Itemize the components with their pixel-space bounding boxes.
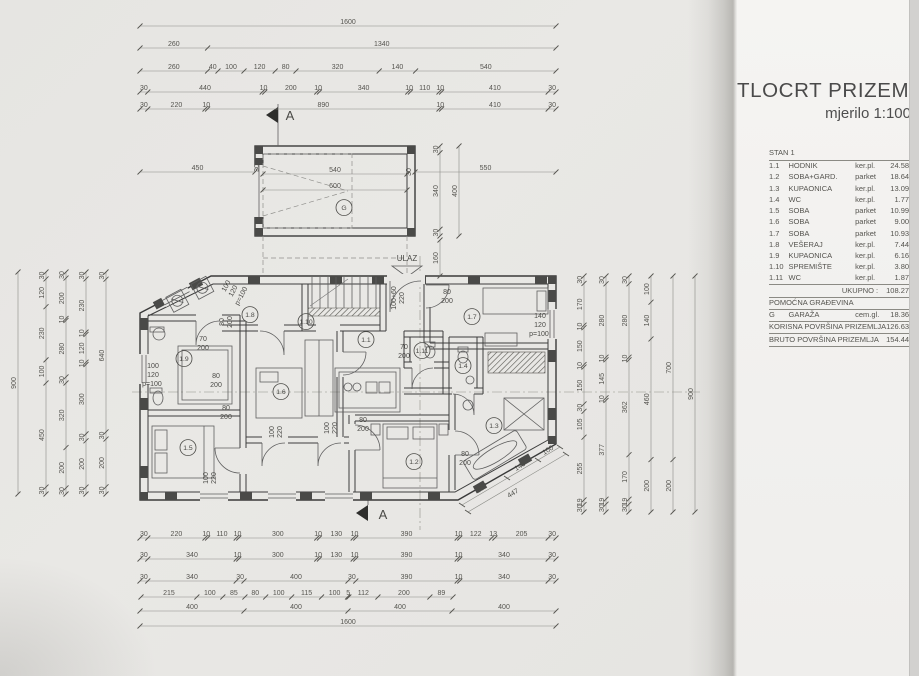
svg-text:540: 540	[480, 64, 492, 71]
table-row: 1.7SOBAparket10.93 m²	[769, 228, 919, 239]
svg-text:200: 200	[285, 85, 297, 92]
svg-text:340: 340	[186, 574, 198, 581]
svg-text:100: 100	[324, 422, 331, 434]
svg-text:160: 160	[433, 252, 440, 264]
svg-text:80: 80	[212, 373, 220, 380]
table-row: 1.8VEŠERAJker.pl.7.44 m²	[769, 240, 919, 251]
svg-text:220: 220	[332, 422, 339, 434]
corner-shadow	[0, 556, 160, 676]
svg-text:30: 30	[548, 574, 556, 581]
svg-text:10: 10	[436, 102, 444, 109]
svg-text:105: 105	[577, 418, 584, 430]
svg-text:30: 30	[577, 276, 584, 284]
svg-text:215: 215	[163, 590, 175, 597]
summary-row-total: UKUPNO :108.27 m²	[769, 285, 919, 297]
svg-text:10: 10	[59, 315, 66, 323]
svg-text:230: 230	[39, 327, 46, 339]
svg-text:300: 300	[272, 531, 284, 538]
svg-text:30: 30	[599, 276, 606, 284]
svg-text:122: 122	[470, 531, 482, 538]
svg-text:100: 100	[273, 590, 285, 597]
svg-text:30: 30	[79, 487, 86, 495]
section-marker-top	[266, 104, 278, 146]
svg-text:200: 200	[79, 458, 86, 470]
svg-text:80: 80	[461, 451, 469, 458]
svg-text:30: 30	[236, 574, 244, 581]
svg-text:30: 30	[577, 504, 584, 512]
svg-text:410: 410	[489, 85, 501, 92]
svg-text:200: 200	[99, 457, 106, 469]
svg-text:30: 30	[39, 487, 46, 495]
table-row: 1.5SOBAparket10.99 m²	[769, 206, 919, 217]
svg-text:100: 100	[269, 426, 276, 438]
garage-outline	[254, 146, 415, 275]
svg-text:10: 10	[202, 102, 210, 109]
svg-text:10: 10	[234, 552, 242, 559]
svg-text:320: 320	[332, 64, 344, 71]
dimension-layer: 1600260134026040100120803201405403044010…	[11, 19, 698, 628]
svg-text:10: 10	[622, 355, 629, 363]
svg-text:220: 220	[211, 472, 218, 484]
svg-text:100+60: 100+60	[391, 286, 398, 310]
svg-text:30: 30	[548, 102, 556, 109]
svg-text:100: 100	[204, 590, 216, 597]
svg-text:30: 30	[622, 504, 629, 512]
table-row: 1.3KUPAONICAker.pl.13.09 m²	[769, 183, 919, 194]
svg-text:1.6: 1.6	[276, 389, 286, 396]
svg-text:10: 10	[455, 552, 463, 559]
svg-text:220: 220	[171, 531, 183, 538]
scanned-sheet: 1600260134026040100120803201405403044010…	[0, 0, 919, 676]
svg-text:340: 340	[498, 574, 510, 581]
svg-text:80: 80	[219, 318, 226, 326]
svg-text:220: 220	[399, 292, 406, 304]
svg-text:120: 120	[534, 322, 546, 329]
svg-text:p=100: p=100	[142, 381, 162, 388]
svg-text:460: 460	[644, 393, 651, 405]
svg-text:280: 280	[622, 315, 629, 327]
svg-text:300: 300	[79, 393, 86, 405]
svg-text:130: 130	[330, 531, 342, 538]
svg-text:100: 100	[644, 283, 651, 295]
svg-text:400: 400	[290, 574, 302, 581]
svg-text:10: 10	[314, 85, 322, 92]
svg-text:200: 200	[197, 345, 209, 352]
svg-text:390: 390	[401, 574, 413, 581]
table-row: 1.11WCker.pl.1.87 m²	[769, 273, 919, 285]
summary-row-garage: GGARAŽAcem.gl.18.36 m²	[769, 309, 919, 321]
svg-text:280: 280	[59, 343, 66, 355]
svg-text:260: 260	[168, 41, 180, 48]
svg-text:120: 120	[79, 342, 86, 354]
svg-text:1.11: 1.11	[416, 348, 429, 355]
svg-text:200: 200	[459, 460, 471, 467]
svg-text:130: 130	[330, 552, 342, 559]
svg-text:110: 110	[216, 531, 227, 538]
svg-text:900: 900	[11, 377, 18, 389]
svg-text:30: 30	[599, 504, 606, 512]
svg-text:447: 447	[506, 488, 520, 500]
svg-text:200: 200	[666, 480, 673, 492]
svg-text:10: 10	[436, 85, 444, 92]
svg-text:30: 30	[59, 487, 66, 495]
svg-text:112: 112	[358, 590, 369, 597]
svg-text:30: 30	[79, 271, 86, 279]
svg-text:70: 70	[199, 336, 207, 343]
svg-text:30: 30	[254, 164, 261, 172]
table-row: 1.2SOBA+GARD.parket18.64 m²	[769, 172, 919, 183]
svg-text:30: 30	[39, 271, 46, 279]
svg-text:400: 400	[186, 604, 198, 611]
svg-text:1340: 1340	[374, 41, 390, 48]
svg-text:10: 10	[314, 552, 322, 559]
svg-text:30: 30	[433, 145, 440, 153]
svg-text:320: 320	[59, 409, 66, 421]
svg-text:377: 377	[599, 444, 606, 456]
svg-text:200: 200	[441, 298, 453, 305]
svg-text:10: 10	[314, 531, 322, 538]
table-header: STAN 1	[769, 148, 919, 161]
svg-text:1.3: 1.3	[489, 423, 499, 430]
svg-text:10: 10	[79, 359, 86, 367]
svg-text:80: 80	[222, 405, 230, 412]
svg-text:200: 200	[210, 382, 222, 389]
svg-text:140: 140	[644, 315, 651, 327]
scale-label: mjerilo 1:100	[825, 105, 911, 122]
svg-text:540: 540	[329, 167, 341, 174]
svg-text:10: 10	[599, 355, 606, 363]
title-block-panel: TLOCRT PRIZEMLJA mjerilo 1:100 STAN 1 1.…	[737, 0, 919, 676]
svg-text:A: A	[286, 108, 295, 123]
summary-row-section: POMOĆNA GRAĐEVINA	[769, 297, 919, 309]
svg-text:30: 30	[140, 531, 148, 538]
svg-text:1.4: 1.4	[458, 363, 468, 370]
svg-text:340: 340	[186, 552, 198, 559]
svg-text:200: 200	[357, 426, 369, 433]
svg-text:115: 115	[301, 590, 312, 597]
svg-text:80: 80	[282, 64, 290, 71]
table-row: 1.4WCker.pl.1.77 m²	[769, 195, 919, 206]
svg-text:220: 220	[171, 102, 183, 109]
svg-text:300: 300	[272, 552, 284, 559]
svg-text:340: 340	[498, 552, 510, 559]
svg-text:362: 362	[622, 401, 629, 413]
svg-text:30: 30	[548, 531, 556, 538]
svg-text:890: 890	[317, 102, 329, 109]
svg-text:170: 170	[577, 298, 584, 310]
svg-text:10: 10	[351, 531, 359, 538]
svg-text:150: 150	[577, 340, 584, 352]
svg-text:120: 120	[254, 64, 266, 71]
svg-text:200: 200	[220, 414, 232, 421]
svg-text:10: 10	[260, 85, 268, 92]
svg-text:390: 390	[401, 531, 413, 538]
svg-text:1.5: 1.5	[183, 445, 193, 452]
svg-text:80: 80	[251, 590, 259, 597]
svg-text:200: 200	[398, 590, 410, 597]
svg-text:410: 410	[489, 102, 501, 109]
svg-text:400: 400	[498, 604, 510, 611]
svg-text:200: 200	[227, 316, 234, 328]
svg-text:550: 550	[480, 165, 492, 172]
svg-text:30: 30	[140, 102, 148, 109]
svg-text:1.8: 1.8	[245, 312, 255, 319]
svg-text:110: 110	[419, 85, 430, 92]
svg-text:100: 100	[147, 363, 159, 370]
svg-text:390: 390	[401, 552, 413, 559]
svg-text:30: 30	[406, 168, 413, 176]
svg-text:10: 10	[577, 362, 584, 370]
svg-text:260: 260	[168, 64, 180, 71]
svg-text:5: 5	[346, 590, 350, 597]
svg-text:400: 400	[452, 185, 459, 197]
svg-text:30: 30	[577, 404, 584, 412]
svg-text:G: G	[341, 205, 346, 212]
svg-text:1.10: 1.10	[299, 319, 312, 326]
svg-text:1600: 1600	[340, 619, 356, 626]
svg-text:450: 450	[192, 165, 204, 172]
svg-text:85: 85	[230, 590, 238, 597]
svg-text:700: 700	[666, 362, 673, 374]
svg-text:10: 10	[455, 531, 463, 538]
svg-text:600: 600	[329, 183, 341, 190]
svg-text:100: 100	[39, 365, 46, 377]
svg-text:200: 200	[59, 462, 66, 474]
svg-text:1.9: 1.9	[179, 356, 189, 363]
svg-text:340: 340	[358, 85, 370, 92]
table-row: 1.1HODNIKker.pl.24.58 m²	[769, 161, 919, 173]
svg-text:100: 100	[225, 64, 237, 71]
svg-text:30: 30	[79, 433, 86, 441]
svg-text:440: 440	[199, 85, 211, 92]
svg-text:120: 120	[39, 287, 46, 299]
svg-text:10: 10	[599, 395, 606, 403]
svg-text:200: 200	[398, 353, 410, 360]
svg-text:10: 10	[577, 322, 584, 330]
table-row: 1.9KUPAONICAker.pl.6.16 m²	[769, 251, 919, 262]
svg-text:1.7: 1.7	[467, 314, 477, 321]
summary-row: BRUTO POVRŠINA PRIZEMLJA154.44 m²	[769, 334, 919, 346]
svg-text:1600: 1600	[340, 19, 356, 26]
svg-text:30: 30	[548, 85, 556, 92]
svg-text:1.1: 1.1	[361, 337, 371, 344]
svg-text:89: 89	[438, 590, 446, 597]
svg-text:30: 30	[622, 276, 629, 284]
svg-text:230: 230	[79, 300, 86, 312]
svg-text:30: 30	[59, 376, 66, 384]
summary-row: KORISNA POVRŠINA PRIZEMLJA126.63 m²	[769, 322, 919, 334]
svg-text:ULAZ: ULAZ	[397, 254, 418, 263]
svg-text:100: 100	[203, 472, 210, 484]
svg-text:340: 340	[433, 185, 440, 197]
svg-text:A: A	[379, 507, 388, 522]
svg-text:145: 145	[599, 373, 606, 385]
svg-text:80: 80	[359, 417, 367, 424]
svg-text:40: 40	[209, 64, 217, 71]
svg-text:10: 10	[234, 531, 242, 538]
svg-text:640: 640	[99, 350, 106, 362]
svg-text:220: 220	[277, 426, 284, 438]
svg-text:1.2: 1.2	[409, 459, 419, 466]
svg-text:450: 450	[39, 429, 46, 441]
page-fold-shadow	[688, 0, 738, 676]
scan-edge-strip	[909, 0, 919, 676]
svg-text:80: 80	[443, 289, 451, 296]
svg-text:400: 400	[394, 604, 406, 611]
svg-text:150: 150	[577, 380, 584, 392]
table-row: 1.10SPREMIŠTEker.pl.3.80 m²	[769, 262, 919, 273]
svg-text:140: 140	[392, 64, 404, 71]
svg-text:10: 10	[202, 531, 210, 538]
svg-text:10: 10	[455, 574, 463, 581]
svg-text:205: 205	[516, 531, 528, 538]
page-title: TLOCRT PRIZEMLJA	[737, 79, 911, 103]
area-table-body: STAN 1 1.1HODNIKker.pl.24.58 m²1.2SOBA+G…	[769, 148, 919, 346]
svg-text:140: 140	[534, 313, 546, 320]
svg-text:30: 30	[59, 271, 66, 279]
svg-text:70: 70	[400, 344, 408, 351]
table-row: 1.6SOBAparket9.00 m²	[769, 217, 919, 228]
svg-text:10: 10	[351, 552, 359, 559]
svg-text:280: 280	[599, 315, 606, 327]
svg-text:200: 200	[59, 292, 66, 304]
svg-text:400: 400	[290, 604, 302, 611]
svg-text:170: 170	[622, 471, 629, 483]
svg-text:30: 30	[99, 432, 106, 440]
svg-text:p=100: p=100	[529, 331, 549, 338]
svg-text:13: 13	[489, 531, 497, 538]
svg-text:10: 10	[405, 85, 413, 92]
svg-text:120: 120	[147, 372, 159, 379]
area-table: STAN 1 1.1HODNIKker.pl.24.58 m²1.2SOBA+G…	[769, 148, 919, 347]
svg-text:100: 100	[329, 590, 341, 597]
table-header-row: STAN 1	[769, 148, 919, 161]
svg-text:30: 30	[348, 574, 356, 581]
svg-text:30: 30	[140, 85, 148, 92]
stairs	[308, 277, 380, 316]
svg-text:30: 30	[99, 486, 106, 494]
svg-text:30: 30	[548, 552, 556, 559]
svg-text:255: 255	[577, 463, 584, 475]
svg-text:200: 200	[644, 480, 651, 492]
svg-text:10: 10	[79, 329, 86, 337]
svg-text:30: 30	[99, 272, 106, 280]
svg-text:30: 30	[433, 229, 440, 237]
